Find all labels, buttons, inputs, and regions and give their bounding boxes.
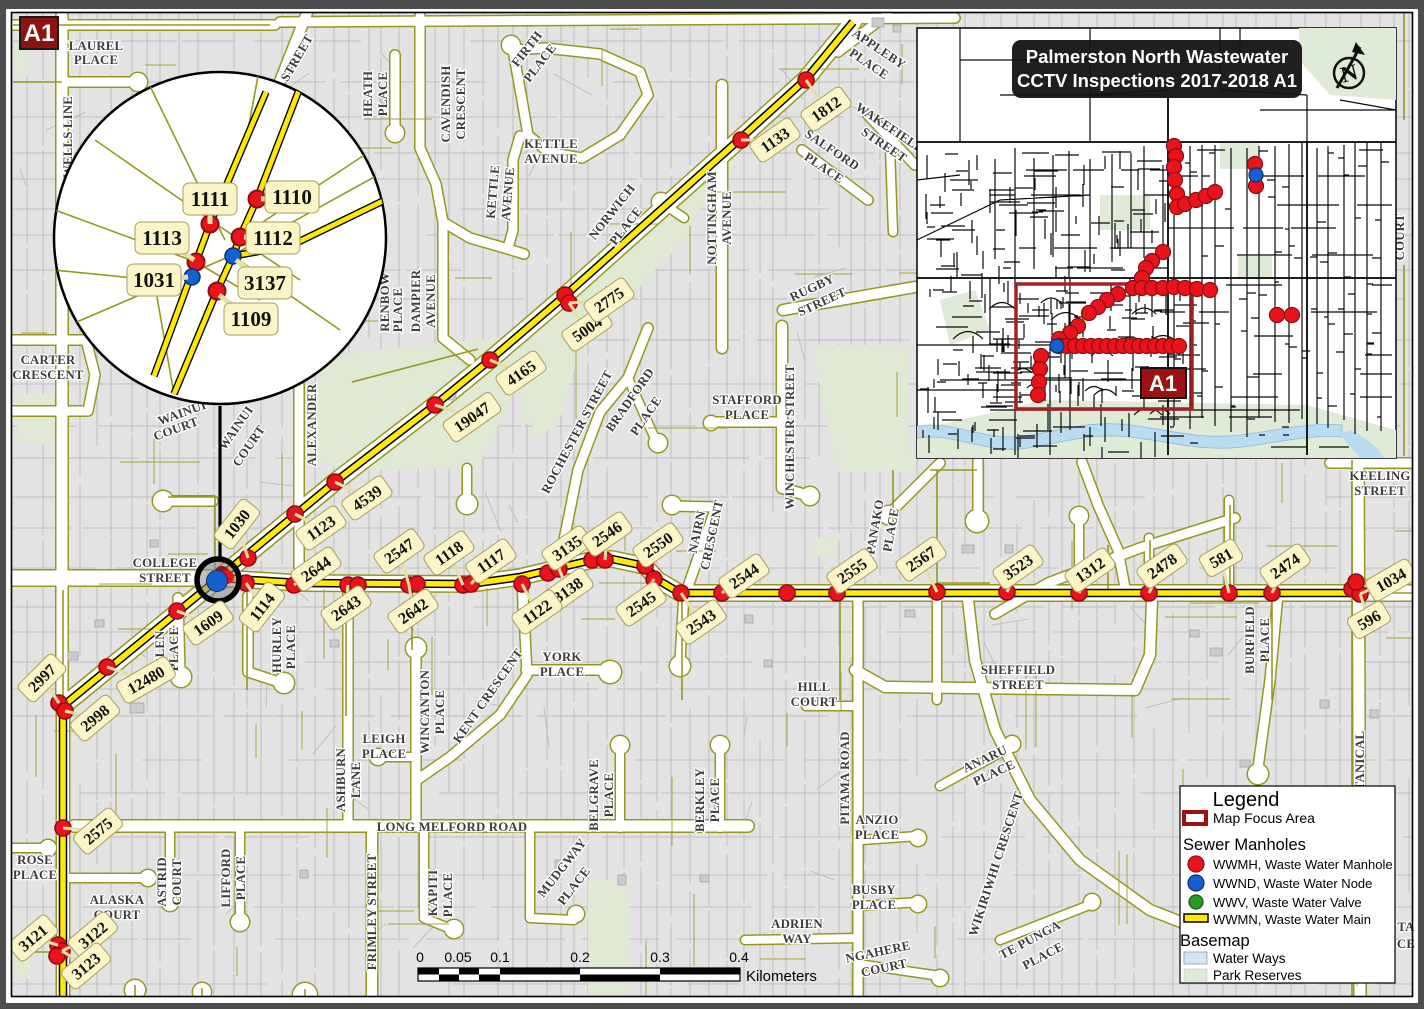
svg-text:Park Reserves: Park Reserves	[1213, 968, 1302, 983]
svg-text:0.4: 0.4	[729, 949, 749, 965]
svg-text:0.3: 0.3	[650, 949, 670, 965]
svg-text:AVENUE: AVENUE	[424, 274, 438, 328]
svg-text:YORK: YORK	[542, 650, 581, 664]
svg-text:Legend: Legend	[1213, 789, 1280, 811]
svg-text:AVENUE: AVENUE	[524, 152, 578, 166]
svg-text:HEATH: HEATH	[361, 71, 375, 117]
svg-text:ALEXANDER: ALEXANDER	[305, 383, 319, 466]
svg-text:BELGRAVE: BELGRAVE	[587, 759, 601, 831]
svg-text:0.1: 0.1	[490, 949, 510, 965]
svg-text:LAUREL: LAUREL	[69, 39, 124, 53]
svg-text:CRESCENT: CRESCENT	[12, 368, 84, 382]
svg-text:STAFFORD: STAFFORD	[712, 393, 782, 407]
svg-text:WWV, Waste Water Valve: WWV, Waste Water Valve	[1213, 895, 1362, 910]
svg-text:PLACE: PLACE	[602, 773, 616, 817]
svg-text:PLACE: PLACE	[708, 778, 722, 822]
svg-text:A1: A1	[1149, 371, 1177, 396]
svg-text:Map Focus Area: Map Focus Area	[1213, 810, 1315, 826]
svg-text:PLACE: PLACE	[433, 690, 447, 734]
svg-text:PLACE: PLACE	[362, 747, 406, 761]
svg-text:1110: 1110	[272, 185, 312, 209]
svg-text:STREET: STREET	[139, 571, 191, 585]
svg-text:PLACE: PLACE	[1258, 618, 1272, 662]
svg-text:WWND, Waste Water Node: WWND, Waste Water Node	[1213, 876, 1372, 891]
svg-text:ANZIO: ANZIO	[856, 813, 899, 827]
svg-text:NOTTINGHAM: NOTTINGHAM	[705, 171, 719, 265]
svg-text:ROSE: ROSE	[17, 853, 53, 867]
svg-text:Kilometers: Kilometers	[746, 968, 817, 985]
svg-text:3137: 3137	[244, 271, 286, 295]
svg-text:CCTV Inspections 2017-2018 A1: CCTV Inspections 2017-2018 A1	[1017, 70, 1297, 91]
svg-text:1109: 1109	[231, 307, 272, 331]
svg-text:Basemap: Basemap	[1180, 932, 1250, 950]
svg-text:PLACE: PLACE	[855, 828, 899, 842]
svg-text:HILL: HILL	[798, 680, 831, 694]
svg-text:LONG MELFORD ROAD: LONG MELFORD ROAD	[377, 820, 528, 834]
svg-text:STREET: STREET	[992, 678, 1044, 692]
svg-text:1111: 1111	[191, 187, 230, 211]
svg-text:PITAMA ROAD: PITAMA ROAD	[838, 731, 852, 824]
svg-text:SHEFFIELD: SHEFFIELD	[981, 663, 1055, 677]
svg-text:A1: A1	[24, 20, 55, 47]
svg-text:Palmerston North Wastewater: Palmerston North Wastewater	[1026, 46, 1289, 67]
svg-text:COURT: COURT	[791, 695, 838, 709]
svg-text:ASHBURN: ASHBURN	[334, 747, 348, 812]
svg-text:PLACE: PLACE	[234, 856, 248, 900]
svg-text:PLACE: PLACE	[391, 288, 405, 332]
svg-text:STREET: STREET	[1354, 484, 1406, 498]
svg-text:PLACE: PLACE	[74, 53, 118, 67]
svg-text:PLACE: PLACE	[852, 898, 896, 912]
svg-text:BURFIELD: BURFIELD	[1243, 606, 1257, 674]
svg-text:PLACE: PLACE	[284, 625, 298, 669]
svg-text:FRIMLEY STREET: FRIMLEY STREET	[365, 854, 379, 971]
svg-text:WAY: WAY	[782, 932, 811, 946]
svg-text:BERKLEY: BERKLEY	[693, 768, 707, 832]
svg-text:COLLEGE: COLLEGE	[133, 556, 198, 570]
svg-text:LIFFORD: LIFFORD	[219, 849, 233, 908]
svg-text:Water Ways: Water Ways	[1213, 951, 1286, 966]
svg-text:KETTLE: KETTLE	[524, 137, 578, 151]
svg-text:PLACE: PLACE	[376, 72, 390, 116]
svg-text:COURT: COURT	[170, 858, 184, 905]
svg-text:LEIGH: LEIGH	[363, 732, 406, 746]
svg-text:AVENUE: AVENUE	[720, 191, 734, 245]
svg-text:PLACE: PLACE	[13, 868, 57, 882]
svg-text:KAPITI: KAPITI	[426, 870, 440, 917]
svg-text:PLACE: PLACE	[441, 873, 455, 917]
svg-text:WINCHESTER STREET: WINCHESTER STREET	[783, 364, 797, 510]
svg-text:ALASKA: ALASKA	[90, 893, 145, 907]
svg-text:0.05: 0.05	[444, 949, 471, 965]
svg-text:1112: 1112	[253, 226, 293, 250]
svg-text:BUSBY: BUSBY	[852, 883, 896, 897]
svg-text:PLACE: PLACE	[725, 408, 769, 422]
svg-text:DAMPIER: DAMPIER	[409, 269, 423, 332]
svg-text:CARTER: CARTER	[21, 353, 76, 367]
svg-text:WINCANTON: WINCANTON	[418, 669, 432, 754]
svg-text:0: 0	[416, 949, 424, 965]
svg-text:1031: 1031	[133, 268, 175, 292]
svg-text:CRESCENT: CRESCENT	[454, 68, 468, 140]
svg-text:WWMH, Waste Water Manhole: WWMH, Waste Water Manhole	[1213, 857, 1393, 872]
svg-text:CAVENDISH: CAVENDISH	[439, 66, 453, 143]
svg-text:LANE: LANE	[349, 762, 363, 798]
svg-text:ADRIEN: ADRIEN	[771, 917, 823, 931]
svg-text:Sewer Manholes: Sewer Manholes	[1183, 836, 1306, 854]
svg-text:ASTRID: ASTRID	[155, 857, 169, 907]
svg-text:HURLEY: HURLEY	[270, 617, 284, 673]
svg-text:WWMN, Waste Water Main: WWMN, Waste Water Main	[1213, 912, 1371, 927]
svg-text:PLACE: PLACE	[540, 665, 584, 679]
svg-text:1113: 1113	[142, 226, 182, 250]
svg-text:0.2: 0.2	[570, 949, 590, 965]
svg-text:KEELING: KEELING	[1349, 469, 1410, 483]
